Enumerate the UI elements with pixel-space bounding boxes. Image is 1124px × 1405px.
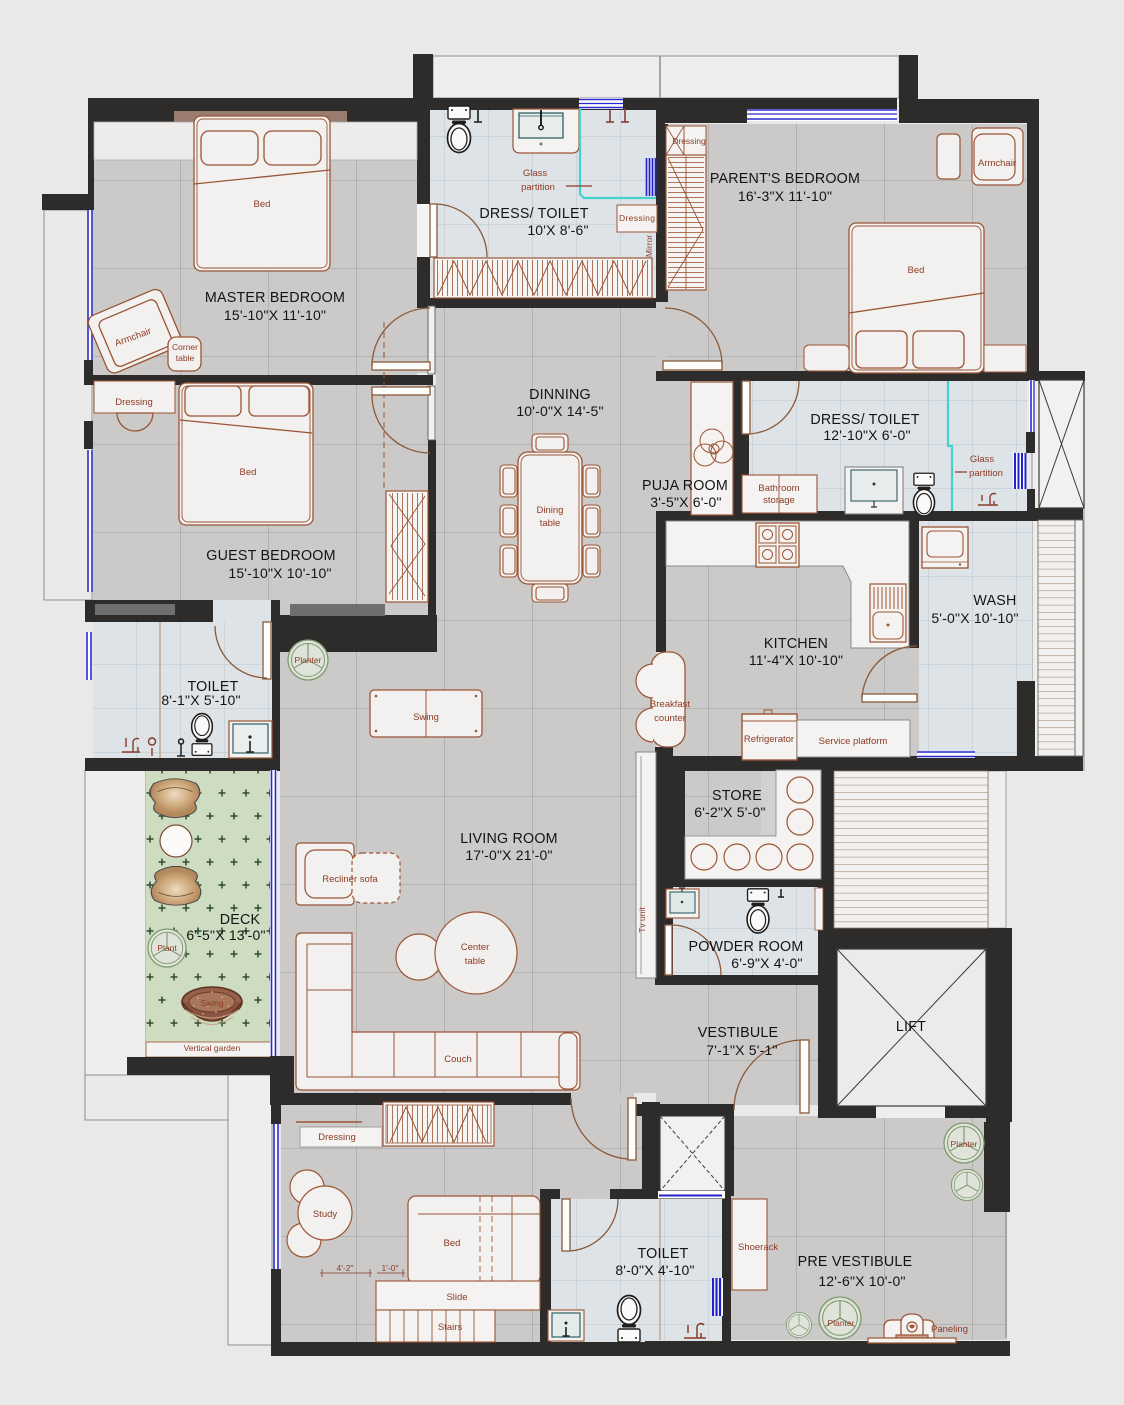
svg-text:Bed: Bed	[444, 1238, 461, 1249]
svg-text:Plant: Plant	[157, 943, 177, 953]
svg-text:Planter: Planter	[828, 1318, 855, 1328]
svg-text:Planter: Planter	[951, 1139, 978, 1149]
svg-text:DINNING: DINNING	[529, 387, 591, 403]
svg-text:Breakfast: Breakfast	[650, 699, 690, 710]
svg-text:Swing: Swing	[200, 998, 223, 1008]
svg-text:16'-3"X 11'-10": 16'-3"X 11'-10"	[738, 188, 832, 204]
svg-text:Couch: Couch	[444, 1054, 471, 1065]
svg-text:PARENT'S BEDROOM: PARENT'S BEDROOM	[710, 171, 860, 187]
svg-text:Swing: Swing	[413, 712, 439, 723]
svg-text:Tv unit: Tv unit	[637, 907, 647, 933]
svg-text:15'-10"X 10'-10": 15'-10"X 10'-10"	[228, 565, 331, 581]
svg-text:Shoerack: Shoerack	[738, 1242, 778, 1253]
svg-text:DECK: DECK	[220, 912, 261, 928]
svg-text:Paneling: Paneling	[931, 1324, 968, 1335]
svg-text:DRESS/ TOILET: DRESS/ TOILET	[810, 412, 919, 428]
svg-text:Dressing: Dressing	[619, 213, 655, 223]
svg-text:LIFT: LIFT	[896, 1019, 926, 1035]
svg-text:Study: Study	[313, 1209, 338, 1220]
svg-text:8'-1"X 5'-10": 8'-1"X 5'-10"	[161, 692, 240, 708]
svg-text:12'-10"X 6'-0": 12'-10"X 6'-0"	[823, 427, 910, 443]
svg-text:LIVING ROOM: LIVING ROOM	[460, 831, 558, 847]
svg-text:VESTIBULE: VESTIBULE	[698, 1025, 778, 1041]
svg-text:3'-5"X 6'-0": 3'-5"X 6'-0"	[650, 494, 721, 510]
svg-text:Glass: Glass	[970, 454, 995, 465]
svg-text:4'-2": 4'-2"	[337, 1263, 354, 1273]
svg-text:table: table	[465, 956, 486, 967]
svg-text:POWDER ROOM: POWDER ROOM	[689, 939, 804, 955]
svg-text:PUJA ROOM: PUJA ROOM	[642, 478, 728, 494]
svg-text:Dressing: Dressing	[318, 1132, 356, 1143]
svg-text:10'-0"X 14'-5": 10'-0"X 14'-5"	[516, 403, 603, 419]
svg-text:Dressing: Dressing	[115, 397, 153, 408]
svg-text:Bed: Bed	[908, 265, 925, 276]
svg-text:5'-0"X 10'-10": 5'-0"X 10'-10"	[931, 610, 1018, 626]
svg-text:7'-1"X 5'-1": 7'-1"X 5'-1"	[706, 1042, 777, 1058]
svg-text:storage: storage	[763, 495, 795, 506]
svg-text:TOILET: TOILET	[638, 1246, 689, 1262]
svg-text:Dressing: Dressing	[672, 136, 706, 146]
svg-text:Slide: Slide	[446, 1292, 467, 1303]
svg-text:10'X 8'-6": 10'X 8'-6"	[527, 222, 588, 238]
svg-text:Center: Center	[461, 942, 490, 953]
svg-text:WASH: WASH	[973, 593, 1016, 609]
svg-text:Vertical garden: Vertical garden	[184, 1043, 241, 1053]
svg-text:partition: partition	[521, 182, 555, 193]
svg-text:1'-0": 1'-0"	[382, 1263, 399, 1273]
svg-text:GUEST BEDROOM: GUEST BEDROOM	[206, 548, 335, 564]
svg-text:8'-0"X 4'-10": 8'-0"X 4'-10"	[615, 1262, 694, 1278]
svg-text:15'-10"X 11'-10": 15'-10"X 11'-10"	[224, 307, 326, 323]
svg-text:Corner: Corner	[172, 342, 198, 352]
svg-text:counter: counter	[654, 713, 686, 724]
svg-text:DRESS/ TOILET: DRESS/ TOILET	[479, 206, 588, 222]
svg-text:Dining: Dining	[537, 505, 564, 516]
svg-text:STORE: STORE	[712, 788, 762, 804]
svg-text:Mirror: Mirror	[644, 235, 654, 257]
svg-text:Armchair: Armchair	[978, 158, 1016, 169]
svg-text:12'-6"X 10'-0": 12'-6"X 10'-0"	[818, 1273, 905, 1289]
svg-text:partition: partition	[969, 468, 1003, 479]
svg-text:PRE VESTIBULE: PRE VESTIBULE	[798, 1254, 913, 1270]
svg-text:Bathroom: Bathroom	[758, 483, 799, 494]
svg-text:table: table	[176, 353, 195, 363]
svg-text:MASTER BEDROOM: MASTER BEDROOM	[205, 290, 345, 306]
svg-text:Stairs: Stairs	[438, 1322, 463, 1333]
svg-text:Service platform: Service platform	[819, 736, 888, 747]
svg-text:table: table	[540, 518, 561, 529]
svg-text:Planter: Planter	[295, 655, 322, 665]
svg-text:Bed: Bed	[240, 467, 257, 478]
svg-text:6'-5"X 13'-0": 6'-5"X 13'-0"	[186, 927, 265, 943]
svg-text:Glass: Glass	[523, 168, 548, 179]
svg-text:11'-4"X 10'-10": 11'-4"X 10'-10"	[749, 652, 843, 668]
svg-text:Bed: Bed	[254, 199, 271, 210]
svg-text:KITCHEN: KITCHEN	[764, 636, 828, 652]
svg-text:6'-2"X 5'-0": 6'-2"X 5'-0"	[694, 804, 765, 820]
svg-text:Refrigerator: Refrigerator	[744, 734, 794, 745]
svg-text:6'-9"X 4'-0": 6'-9"X 4'-0"	[731, 955, 802, 971]
svg-text:17'-0"X 21'-0": 17'-0"X 21'-0"	[465, 847, 552, 863]
svg-text:Recliner sofa: Recliner sofa	[322, 874, 378, 885]
